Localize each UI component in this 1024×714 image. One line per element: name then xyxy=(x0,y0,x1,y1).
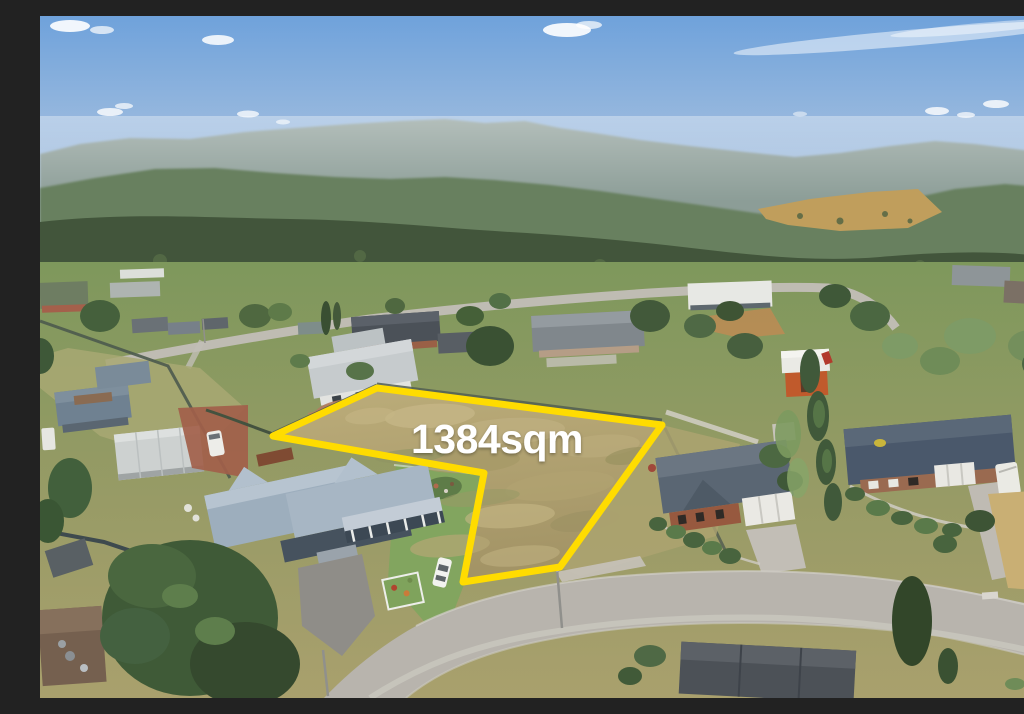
caravan xyxy=(995,462,1021,497)
white-ute xyxy=(41,428,56,451)
fenced-garden xyxy=(382,573,423,610)
aerial-photo: 1384sqm xyxy=(40,16,1024,698)
bottom-center-house xyxy=(679,642,856,698)
scene-canvas: 1384sqm xyxy=(40,16,1024,698)
area-label: 1384sqm xyxy=(411,416,583,462)
concrete-block xyxy=(982,591,998,599)
